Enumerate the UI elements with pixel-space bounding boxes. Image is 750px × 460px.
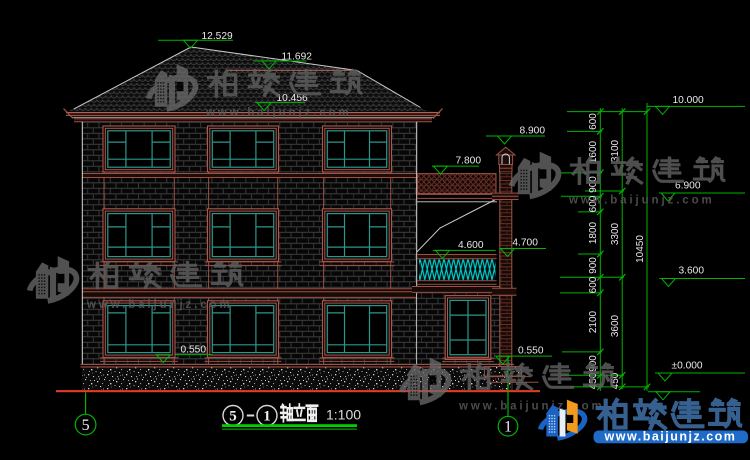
- svg-text:12.529: 12.529: [202, 31, 233, 42]
- svg-text:0.550: 0.550: [518, 346, 544, 357]
- svg-text:8.900: 8.900: [520, 126, 546, 137]
- svg-text:7.800: 7.800: [456, 156, 482, 167]
- svg-text:www.baijunjz.com: www.baijunjz.com: [604, 430, 737, 444]
- svg-text:10.000: 10.000: [673, 95, 704, 106]
- svg-text:3600: 3600: [610, 314, 621, 337]
- svg-text:4.600: 4.600: [458, 240, 484, 251]
- svg-text:3300: 3300: [610, 222, 621, 245]
- svg-text:1: 1: [263, 409, 271, 425]
- svg-text:±0.000: ±0.000: [672, 361, 703, 372]
- svg-text:10450: 10450: [635, 235, 646, 263]
- svg-text:www.baijunjz.com: www.baijunjz.com: [458, 401, 605, 413]
- svg-text:5: 5: [82, 417, 90, 434]
- svg-text:1800: 1800: [588, 221, 599, 244]
- svg-text:600: 600: [588, 113, 599, 130]
- svg-text:0.550: 0.550: [181, 345, 207, 356]
- svg-text:1:100: 1:100: [326, 407, 361, 423]
- svg-text:600: 600: [588, 276, 599, 293]
- svg-text:1: 1: [504, 419, 512, 436]
- svg-text:www.baijunjz.com: www.baijunjz.com: [86, 299, 233, 311]
- svg-text:www.baijunjz.com: www.baijunjz.com: [205, 107, 352, 119]
- svg-text:2100: 2100: [588, 310, 599, 333]
- svg-text:11.692: 11.692: [282, 52, 313, 63]
- svg-text:www.baijunjz.com: www.baijunjz.com: [568, 195, 715, 207]
- svg-text:3.600: 3.600: [679, 266, 705, 277]
- svg-text:450: 450: [588, 372, 599, 389]
- svg-text:5: 5: [229, 409, 237, 425]
- svg-text:900: 900: [588, 257, 599, 274]
- svg-text:4.700: 4.700: [512, 238, 538, 249]
